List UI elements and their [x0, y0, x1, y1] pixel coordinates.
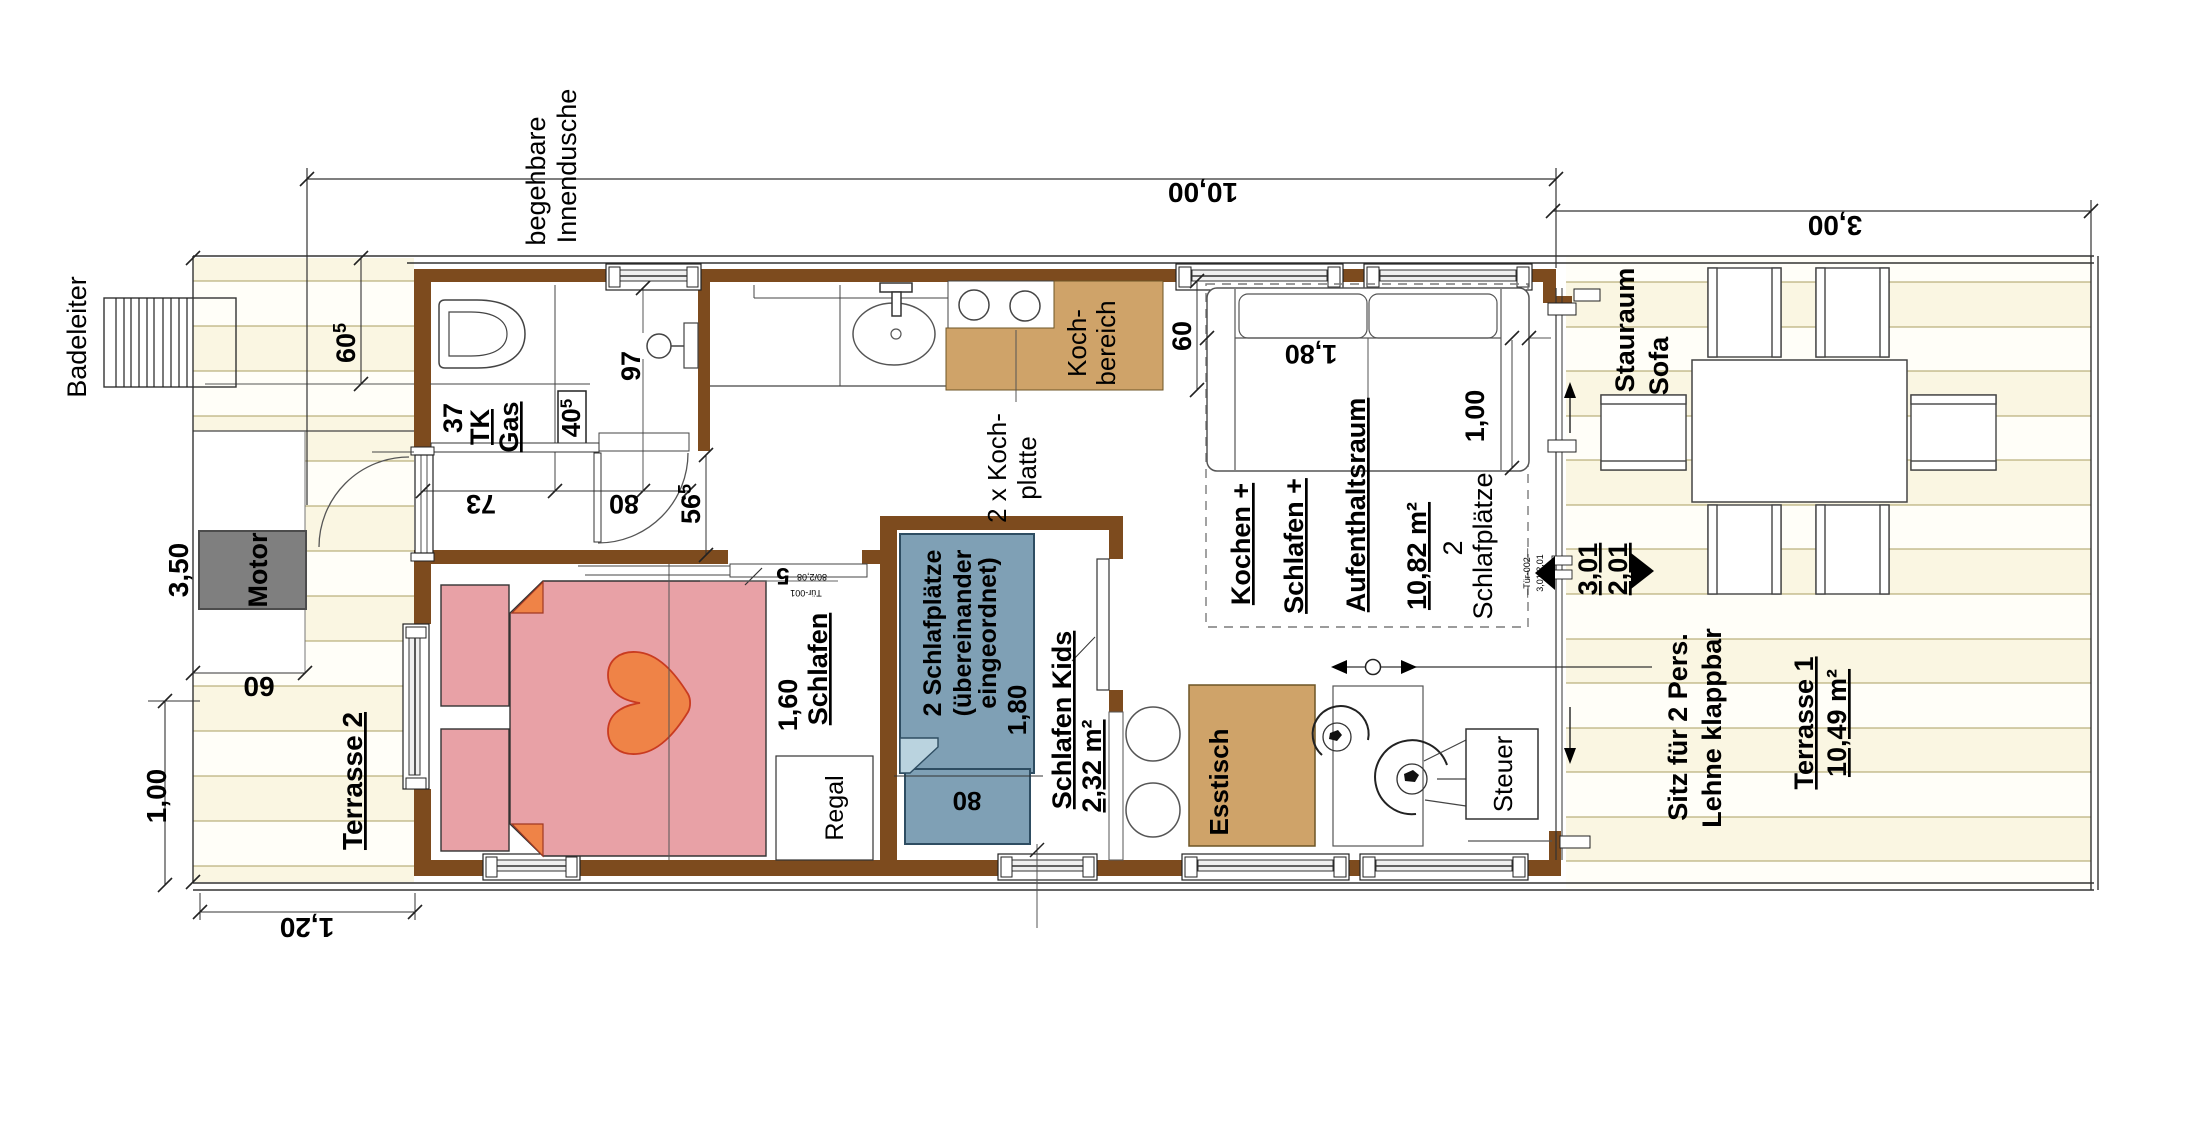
svg-text:3,01: 3,01: [1573, 543, 1603, 596]
svg-text:Innendusche: Innendusche: [552, 89, 582, 244]
svg-text:bereich: bereich: [1091, 300, 1121, 385]
svg-text:Sitz für 2 Pers.: Sitz für 2 Pers.: [1663, 633, 1693, 821]
svg-text:Schlafplätze: Schlafplätze: [1468, 472, 1498, 619]
svg-text:Tür-001: Tür-001: [790, 588, 822, 598]
svg-text:2: 2: [1438, 540, 1468, 555]
svg-text:Stauraum: Stauraum: [1610, 268, 1640, 393]
svg-text:Esstisch: Esstisch: [1204, 729, 1234, 836]
svg-text:eingeordnet): eingeordnet): [974, 557, 1002, 708]
svg-text:Koch-: Koch-: [1062, 309, 1092, 377]
svg-text:1,60: 1,60: [773, 679, 803, 732]
svg-text:2 Schlafplätze: 2 Schlafplätze: [919, 550, 947, 717]
svg-text:begehbare: begehbare: [521, 116, 551, 245]
svg-text:Terrasse 2: Terrasse 2: [337, 712, 368, 850]
svg-text:Aufenthaltsraum: Aufenthaltsraum: [1341, 398, 1371, 613]
svg-text:Sofa: Sofa: [1644, 336, 1674, 395]
svg-text:97: 97: [616, 351, 646, 381]
svg-text:10,82 m²: 10,82 m²: [1402, 502, 1432, 610]
svg-text:—Tür-002—: —Tür-002—: [1522, 548, 1532, 598]
svg-text:10,00: 10,00: [1168, 177, 1238, 208]
svg-text:(übereinander: (übereinander: [949, 549, 977, 716]
svg-text:Terrasse 1: Terrasse 1: [1789, 656, 1819, 789]
svg-text:Motor: Motor: [243, 532, 273, 607]
svg-text:Steuer: Steuer: [1488, 735, 1518, 812]
svg-text:Lehne klappbar: Lehne klappbar: [1697, 628, 1727, 828]
svg-text:platte: platte: [1012, 436, 1042, 500]
svg-text:5: 5: [776, 562, 789, 589]
svg-text:3,50: 3,50: [163, 543, 194, 598]
svg-text:37: 37: [438, 403, 468, 433]
svg-text:1,80: 1,80: [1002, 685, 1032, 736]
svg-text:60: 60: [1167, 321, 1197, 351]
svg-text:Schlafen: Schlafen: [803, 613, 833, 726]
svg-text:80: 80: [953, 786, 982, 816]
svg-text:1,00: 1,00: [141, 769, 172, 824]
svg-text:TK: TK: [465, 409, 495, 445]
svg-text:60: 60: [243, 671, 274, 702]
svg-text:1,00: 1,00: [1460, 390, 1490, 443]
svg-text:2,01: 2,01: [1603, 543, 1633, 596]
svg-text:2 x Koch-: 2 x Koch-: [982, 413, 1012, 523]
svg-text:3,00: 3,00: [1808, 210, 1863, 241]
svg-text:2,32 m²: 2,32 m²: [1077, 719, 1107, 812]
svg-text:Kochen +: Kochen +: [1226, 483, 1256, 605]
svg-text:Schlafen Kids: Schlafen Kids: [1047, 631, 1077, 810]
svg-text:Badeleiter: Badeleiter: [62, 276, 92, 398]
svg-text:1,80: 1,80: [1285, 339, 1338, 369]
svg-text:73: 73: [466, 489, 496, 519]
svg-text:Regal: Regal: [821, 775, 849, 840]
svg-text:80/2,08: 80/2,08: [797, 572, 827, 582]
svg-text:1,20: 1,20: [280, 912, 335, 943]
svg-text:80: 80: [609, 489, 639, 519]
svg-text:10,49 m²: 10,49 m²: [1822, 669, 1852, 777]
svg-text:Schlafen +: Schlafen +: [1279, 478, 1309, 614]
svg-text:Gas: Gas: [494, 401, 524, 452]
